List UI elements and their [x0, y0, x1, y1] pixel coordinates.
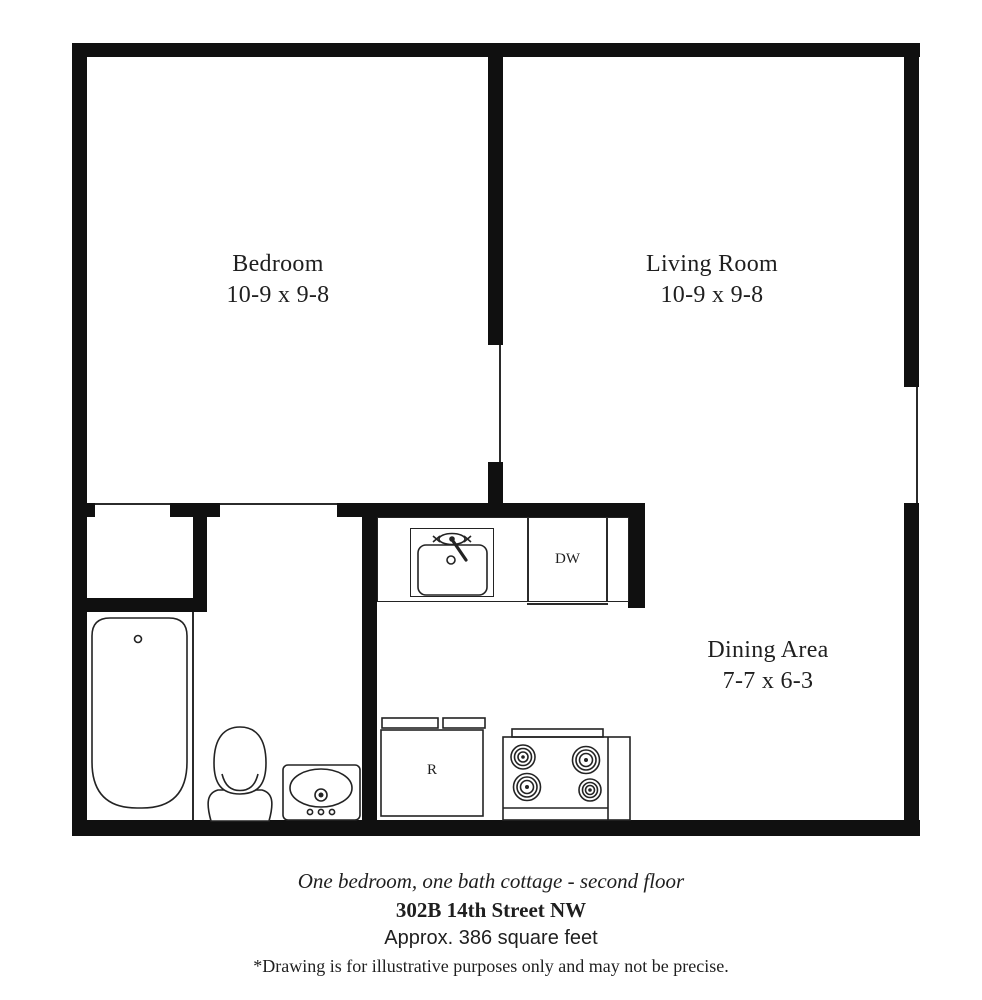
dining-area-dims: 7-7 x 6-3 [648, 668, 888, 695]
stove [503, 729, 630, 820]
toilet-bowl [214, 727, 266, 794]
dining-area-label: Dining Area [648, 637, 888, 664]
refrigerator-door-right [443, 718, 485, 728]
stove-handle [512, 729, 603, 737]
bedroom-dims: 10-9 x 9-8 [158, 282, 398, 309]
stove-burner-top-right [573, 747, 600, 774]
stove-burner-top-left [511, 745, 535, 769]
bathtub [92, 618, 187, 808]
refrigerator-door-left [382, 718, 438, 728]
caption-address: 302B 14th Street NW [0, 898, 982, 923]
refrigerator-label: R [381, 762, 483, 779]
caption-disclaimer: *Drawing is for illustrative purposes on… [0, 956, 982, 977]
toilet [208, 727, 272, 821]
kitchen-sink-basin [418, 545, 487, 595]
living-room-label: Living Room [592, 251, 832, 278]
stove-burner-bottom-right [579, 779, 601, 801]
bedroom-label: Bedroom [158, 251, 398, 278]
kitchen-faucet-icon [433, 534, 471, 565]
caption-description: One bedroom, one bath cottage - second f… [0, 869, 982, 894]
bathtub-drain [135, 636, 142, 643]
floor-plan: Bedroom 10-9 x 9-8 Living Room 10-9 x 9-… [0, 0, 982, 1000]
fixtures-layer [0, 0, 982, 1000]
caption-area: Approx. 386 square feet [0, 927, 982, 950]
bathroom-sink [283, 765, 360, 820]
living-room-dims: 10-9 x 9-8 [592, 282, 832, 309]
dishwasher-label: DW [527, 551, 608, 568]
stove-burner-bottom-left [514, 774, 541, 801]
